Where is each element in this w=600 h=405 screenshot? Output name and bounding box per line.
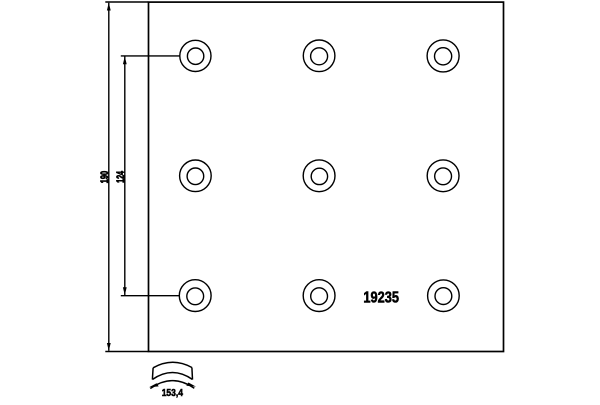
svg-text:124: 124 [115,170,127,182]
svg-text:19235: 19235 [363,290,399,307]
svg-text:190: 190 [99,171,111,183]
svg-text:153,4: 153,4 [162,388,184,399]
